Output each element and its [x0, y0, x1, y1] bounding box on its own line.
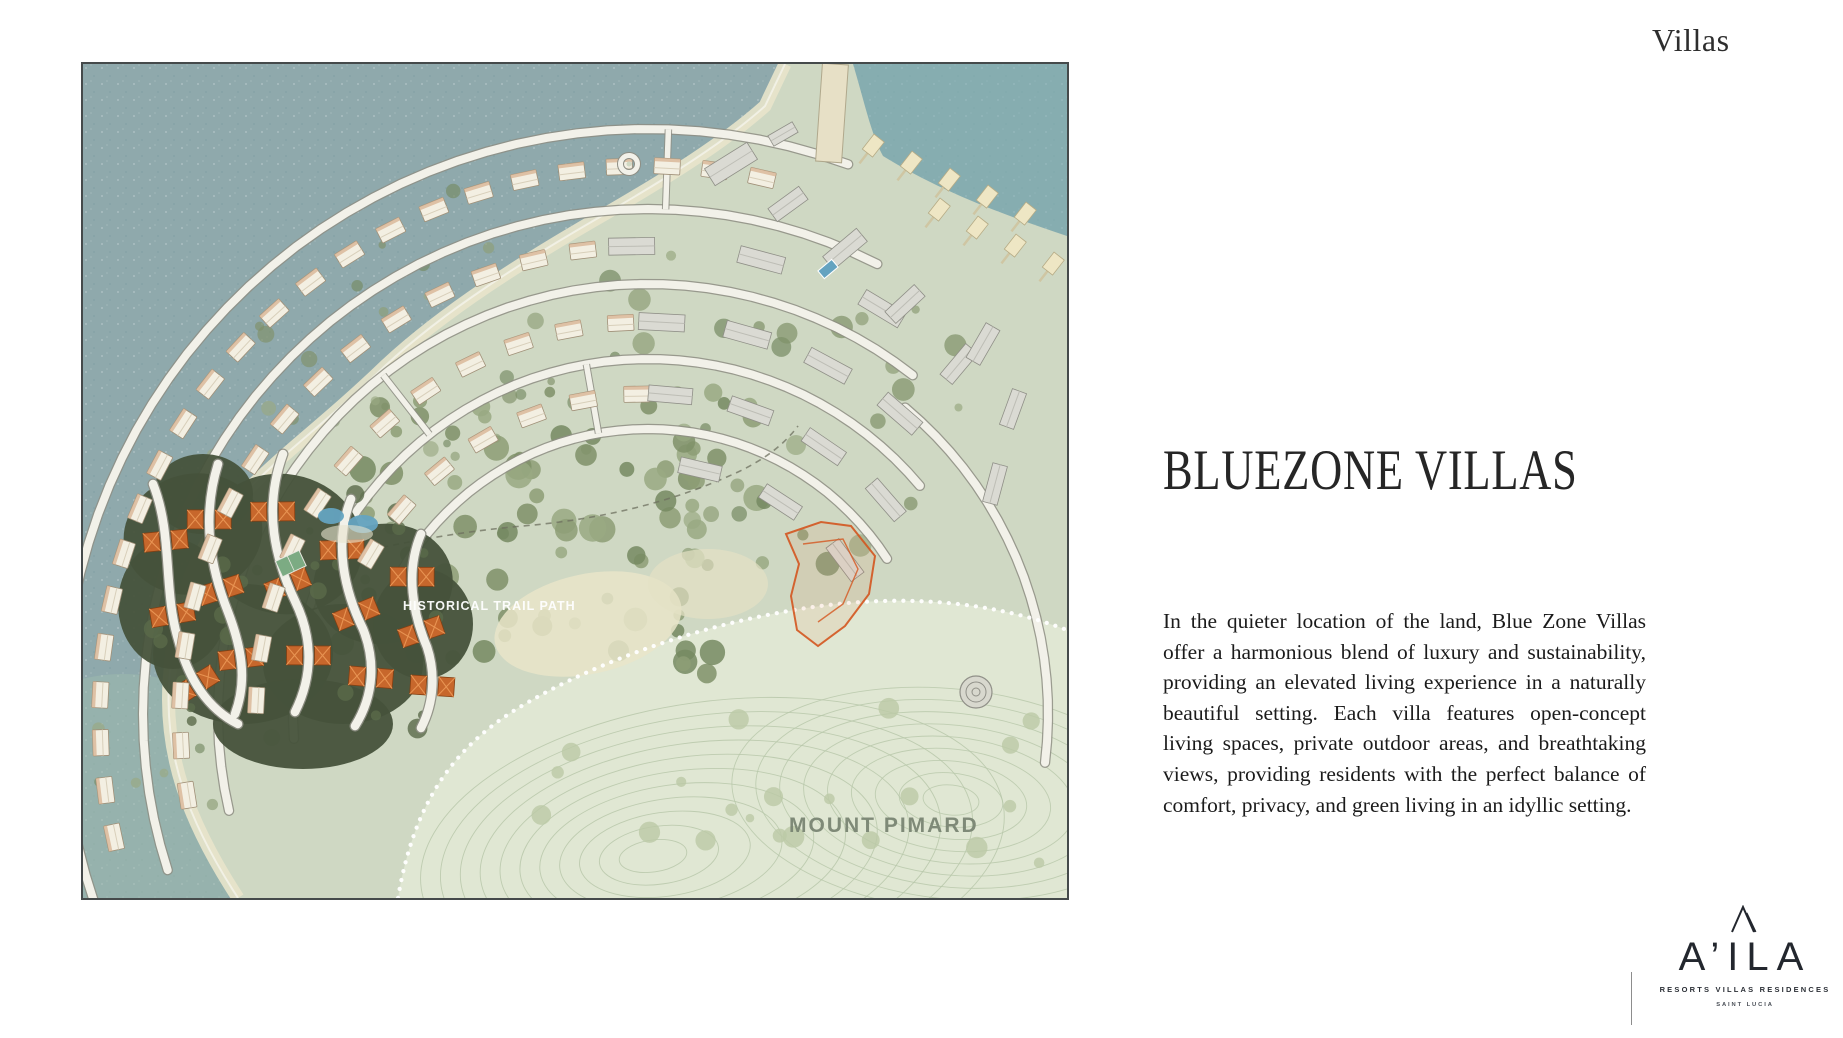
page-corner-label: Villas	[1652, 22, 1752, 59]
site-plan-svg: HISTORICAL TRAIL PATH MOUNT PIMARD	[83, 64, 1067, 898]
page-title: BLUEZONE VILLAS	[1163, 438, 1540, 503]
text-panel: BLUEZONE VILLAS In the quieter location …	[1163, 438, 1646, 503]
map-artwork	[83, 64, 1067, 898]
logo-location: SAINT LUCIA	[1656, 1002, 1834, 1008]
description-paragraph: In the quieter location of the land, Blu…	[1163, 606, 1646, 820]
aila-peak-icon	[1729, 905, 1761, 933]
map-label-mount-pimard: MOUNT PIMARD	[789, 814, 979, 837]
site-plan-map: HISTORICAL TRAIL PATH MOUNT PIMARD	[81, 62, 1069, 900]
brand-logo: A’ILA RESORTS VILLAS RESIDENCES SAINT LU…	[1656, 905, 1834, 1008]
brochure-page: { "page": { "corner_label": "Villas" }, …	[0, 0, 1843, 1038]
logo-tagline: RESORTS VILLAS RESIDENCES	[1656, 985, 1834, 994]
map-label-historical-trail-path: HISTORICAL TRAIL PATH	[403, 599, 576, 613]
logo-divider-line	[1631, 972, 1632, 1025]
logo-name: A’ILA	[1656, 937, 1834, 977]
